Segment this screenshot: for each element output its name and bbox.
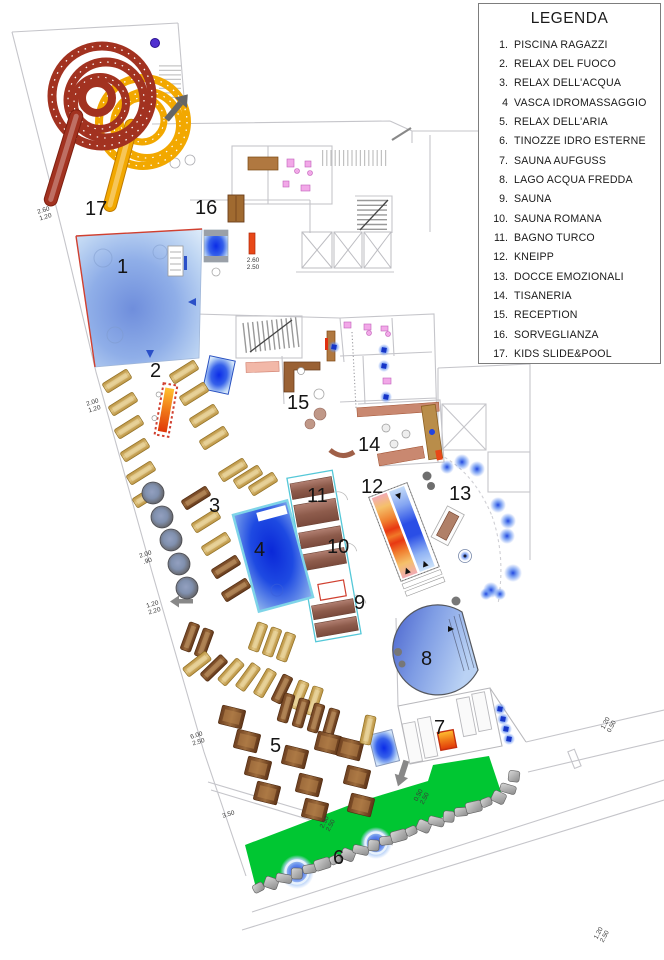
legend-item: 4VASCA IDROMASSAGGIO [479, 93, 660, 112]
legend-item-number: 14. [479, 290, 514, 302]
pool-sorveglianza [204, 230, 228, 276]
dimension-label: 1.200.50 [600, 716, 618, 734]
legend-item: 6.TINOZZE IDRO ESTERNE [479, 132, 660, 151]
elevator-shafts [302, 232, 391, 268]
flat-lounger [343, 765, 371, 789]
legend-item-number: 2. [479, 58, 514, 70]
legend-item: 14.TISANERIA [479, 286, 660, 305]
legend-item-number: 9. [479, 193, 514, 205]
dimension-label: 2.001.20 [86, 397, 102, 414]
legend-item-label: VASCA IDROMASSAGGIO [514, 97, 647, 109]
rock [368, 840, 380, 852]
emotional-shower-dot [480, 588, 492, 600]
lounger [199, 426, 229, 451]
legend-box: LEGENDA 1.PISCINA RAGAZZI2.RELAX DEL FUO… [478, 3, 661, 364]
flat-lounger [233, 729, 261, 753]
legend-item-label: LAGO ACQUA FREDDA [514, 174, 633, 186]
pool-ladder [168, 246, 183, 276]
legend-title: LEGENDA [479, 4, 660, 34]
lounger [211, 555, 241, 580]
legend-item-label: RECEPTION [514, 309, 578, 321]
shower-head [497, 706, 503, 712]
lounger [201, 532, 231, 557]
legend-item-label: DOCCE EMOZIONALI [514, 271, 624, 283]
shower-head [383, 394, 389, 400]
legend-item-number: 3. [479, 77, 514, 89]
plunge-pool [368, 730, 399, 767]
zone-label-3: 3 [209, 495, 220, 517]
zone-label-2: 2 [150, 360, 161, 382]
legend-item: 13.DOCCE EMOZIONALI [479, 267, 660, 286]
legend-item-label: SAUNA ROMANA [514, 213, 602, 225]
zone-label-13: 13 [449, 483, 471, 505]
rock [508, 770, 520, 782]
legend-item: 17.KIDS SLIDE&POOL [479, 345, 660, 364]
legend-item-label: PISCINA RAGAZZI [514, 39, 608, 51]
shower-head [503, 726, 509, 732]
zone-label-4: 4 [254, 539, 265, 561]
emotional-shower-dot [504, 564, 522, 582]
legend-item: 15.RECEPTION [479, 306, 660, 325]
zone-label-12: 12 [361, 476, 383, 498]
zone-label-16: 16 [195, 197, 217, 219]
wood-table [248, 157, 278, 170]
legend-item: 16.SORVEGLIANZA [479, 325, 660, 344]
cold-lake [393, 597, 478, 695]
flat-lounger [295, 773, 323, 797]
flat-lounger [218, 705, 246, 729]
sauna-aufguss [368, 692, 495, 767]
round-tub [176, 577, 198, 599]
shower-head [381, 363, 387, 369]
lounger [120, 438, 150, 463]
zone-label-17: 17 [85, 198, 107, 220]
legend-item-label: TINOZZE IDRO ESTERNE [514, 135, 646, 147]
zone-label-9: 9 [354, 592, 365, 614]
legend-item-number: 1. [479, 39, 514, 51]
dimension-label: 2.601.20 [37, 205, 53, 222]
legend-item: 2.RELAX DEL FUOCO [479, 54, 660, 73]
legend-item-number: 4 [479, 97, 514, 109]
legend-item: 9.SAUNA [479, 190, 660, 209]
legend-item-label: RELAX DELL'ARIA [514, 116, 608, 128]
flat-lounger [336, 737, 364, 761]
legend-item-number: 13. [479, 271, 514, 283]
purple-feature-dot [151, 39, 160, 48]
legend-item-number: 11. [479, 232, 514, 244]
shower-ring-dot [459, 550, 472, 563]
legend-item: 7.SAUNA AUFGUSS [479, 151, 660, 170]
legend-item-label: KNEIPP [514, 251, 554, 263]
floor-plan-page: 1234567891011121314151617 2.601.202.602.… [0, 0, 664, 960]
legend-item: 12.KNEIPP [479, 248, 660, 267]
lounger [189, 404, 219, 429]
dimension-label: 2.00.90 [139, 549, 155, 566]
legend-item-number: 8. [479, 174, 514, 186]
legend-item-number: 16. [479, 329, 514, 341]
lounger [126, 461, 156, 486]
shower-head [381, 347, 387, 353]
emotional-shower-dot [500, 513, 516, 529]
lounger [114, 415, 144, 440]
round-tub [151, 506, 173, 528]
kneipp-path [369, 483, 445, 597]
rock [443, 811, 455, 823]
legend-item-number: 5. [479, 116, 514, 128]
zone-label-5: 5 [270, 735, 281, 757]
lounger [102, 369, 132, 394]
legend-item-number: 15. [479, 309, 514, 321]
zone-label-1: 1 [117, 256, 128, 278]
legend-item-label: SAUNA [514, 193, 552, 205]
zone-label-10: 10 [327, 536, 349, 558]
legend-item-number: 10. [479, 213, 514, 225]
flat-lounger [244, 756, 272, 780]
lounger [179, 382, 209, 407]
lounger [108, 392, 138, 417]
pool-piscina-ragazzi [76, 229, 202, 367]
flat-lounger [281, 745, 309, 769]
reception-desk [246, 361, 326, 429]
emotional-shower-dot [499, 528, 515, 544]
rock [291, 868, 302, 879]
legend-item-number: 6. [479, 135, 514, 147]
flat-lounger [253, 781, 281, 805]
shower-head [500, 716, 506, 722]
legend-item-number: 7. [479, 155, 514, 167]
dimension-label: 1.202.20 [146, 599, 162, 616]
legend-item: 1.PISCINA RAGAZZI [479, 35, 660, 54]
shower-head [506, 736, 512, 742]
lounger [181, 486, 211, 511]
outdoor-lawn [245, 756, 502, 889]
legend-item-label: BAGNO TURCO [514, 232, 595, 244]
legend-item: 10.SAUNA ROMANA [479, 209, 660, 228]
legend-item-label: SAUNA AUFGUSS [514, 155, 606, 167]
legend-item-label: RELAX DEL FUOCO [514, 58, 616, 70]
lounger [221, 578, 251, 603]
round-tub [160, 529, 182, 551]
lounger [169, 360, 199, 385]
round-tub [142, 482, 164, 504]
legend-item: 11.BAGNO TURCO [479, 228, 660, 247]
legend-item-label: KIDS SLIDE&POOL [514, 348, 612, 360]
legend-item-number: 17. [479, 348, 514, 360]
red-marker [249, 233, 255, 254]
emotional-shower-dot [494, 588, 506, 600]
tisaneria [330, 402, 443, 466]
zone-label-8: 8 [421, 648, 432, 670]
legend-item: 8.LAGO ACQUA FREDDA [479, 170, 660, 189]
dimension-label: 2.602.50 [247, 257, 260, 271]
legend-items: 1.PISCINA RAGAZZI2.RELAX DEL FUOCO3.RELA… [479, 34, 660, 364]
zone-label-7: 7 [434, 717, 445, 739]
legend-item: 5.RELAX DELL'ARIA [479, 112, 660, 131]
shower-head [331, 344, 337, 350]
kids-slide-red [43, 46, 152, 208]
emotional-shower-dot [490, 497, 506, 513]
emotional-shower-dot [469, 461, 485, 477]
legend-item-number: 12. [479, 251, 514, 263]
zone-label-6: 6 [333, 847, 344, 869]
round-tub [168, 553, 190, 575]
zone-label-15: 15 [287, 392, 309, 414]
legend-item-label: TISANERIA [514, 290, 572, 302]
legend-item: 3.RELAX DELL'ACQUA [479, 74, 660, 93]
fireplace [149, 382, 177, 437]
emotional-shower-bench [431, 506, 464, 546]
dimension-label: 6.002.50 [190, 730, 206, 747]
zone-label-11: 11 [307, 485, 328, 507]
legend-item-label: SORVEGLIANZA [514, 329, 599, 341]
emotional-shower-dot [440, 460, 454, 474]
zone-label-14: 14 [358, 434, 380, 456]
legend-item-label: RELAX DELL'ACQUA [514, 77, 621, 89]
dimension-label: 1.202.50 [593, 926, 611, 944]
emotional-shower-dot [454, 454, 470, 470]
